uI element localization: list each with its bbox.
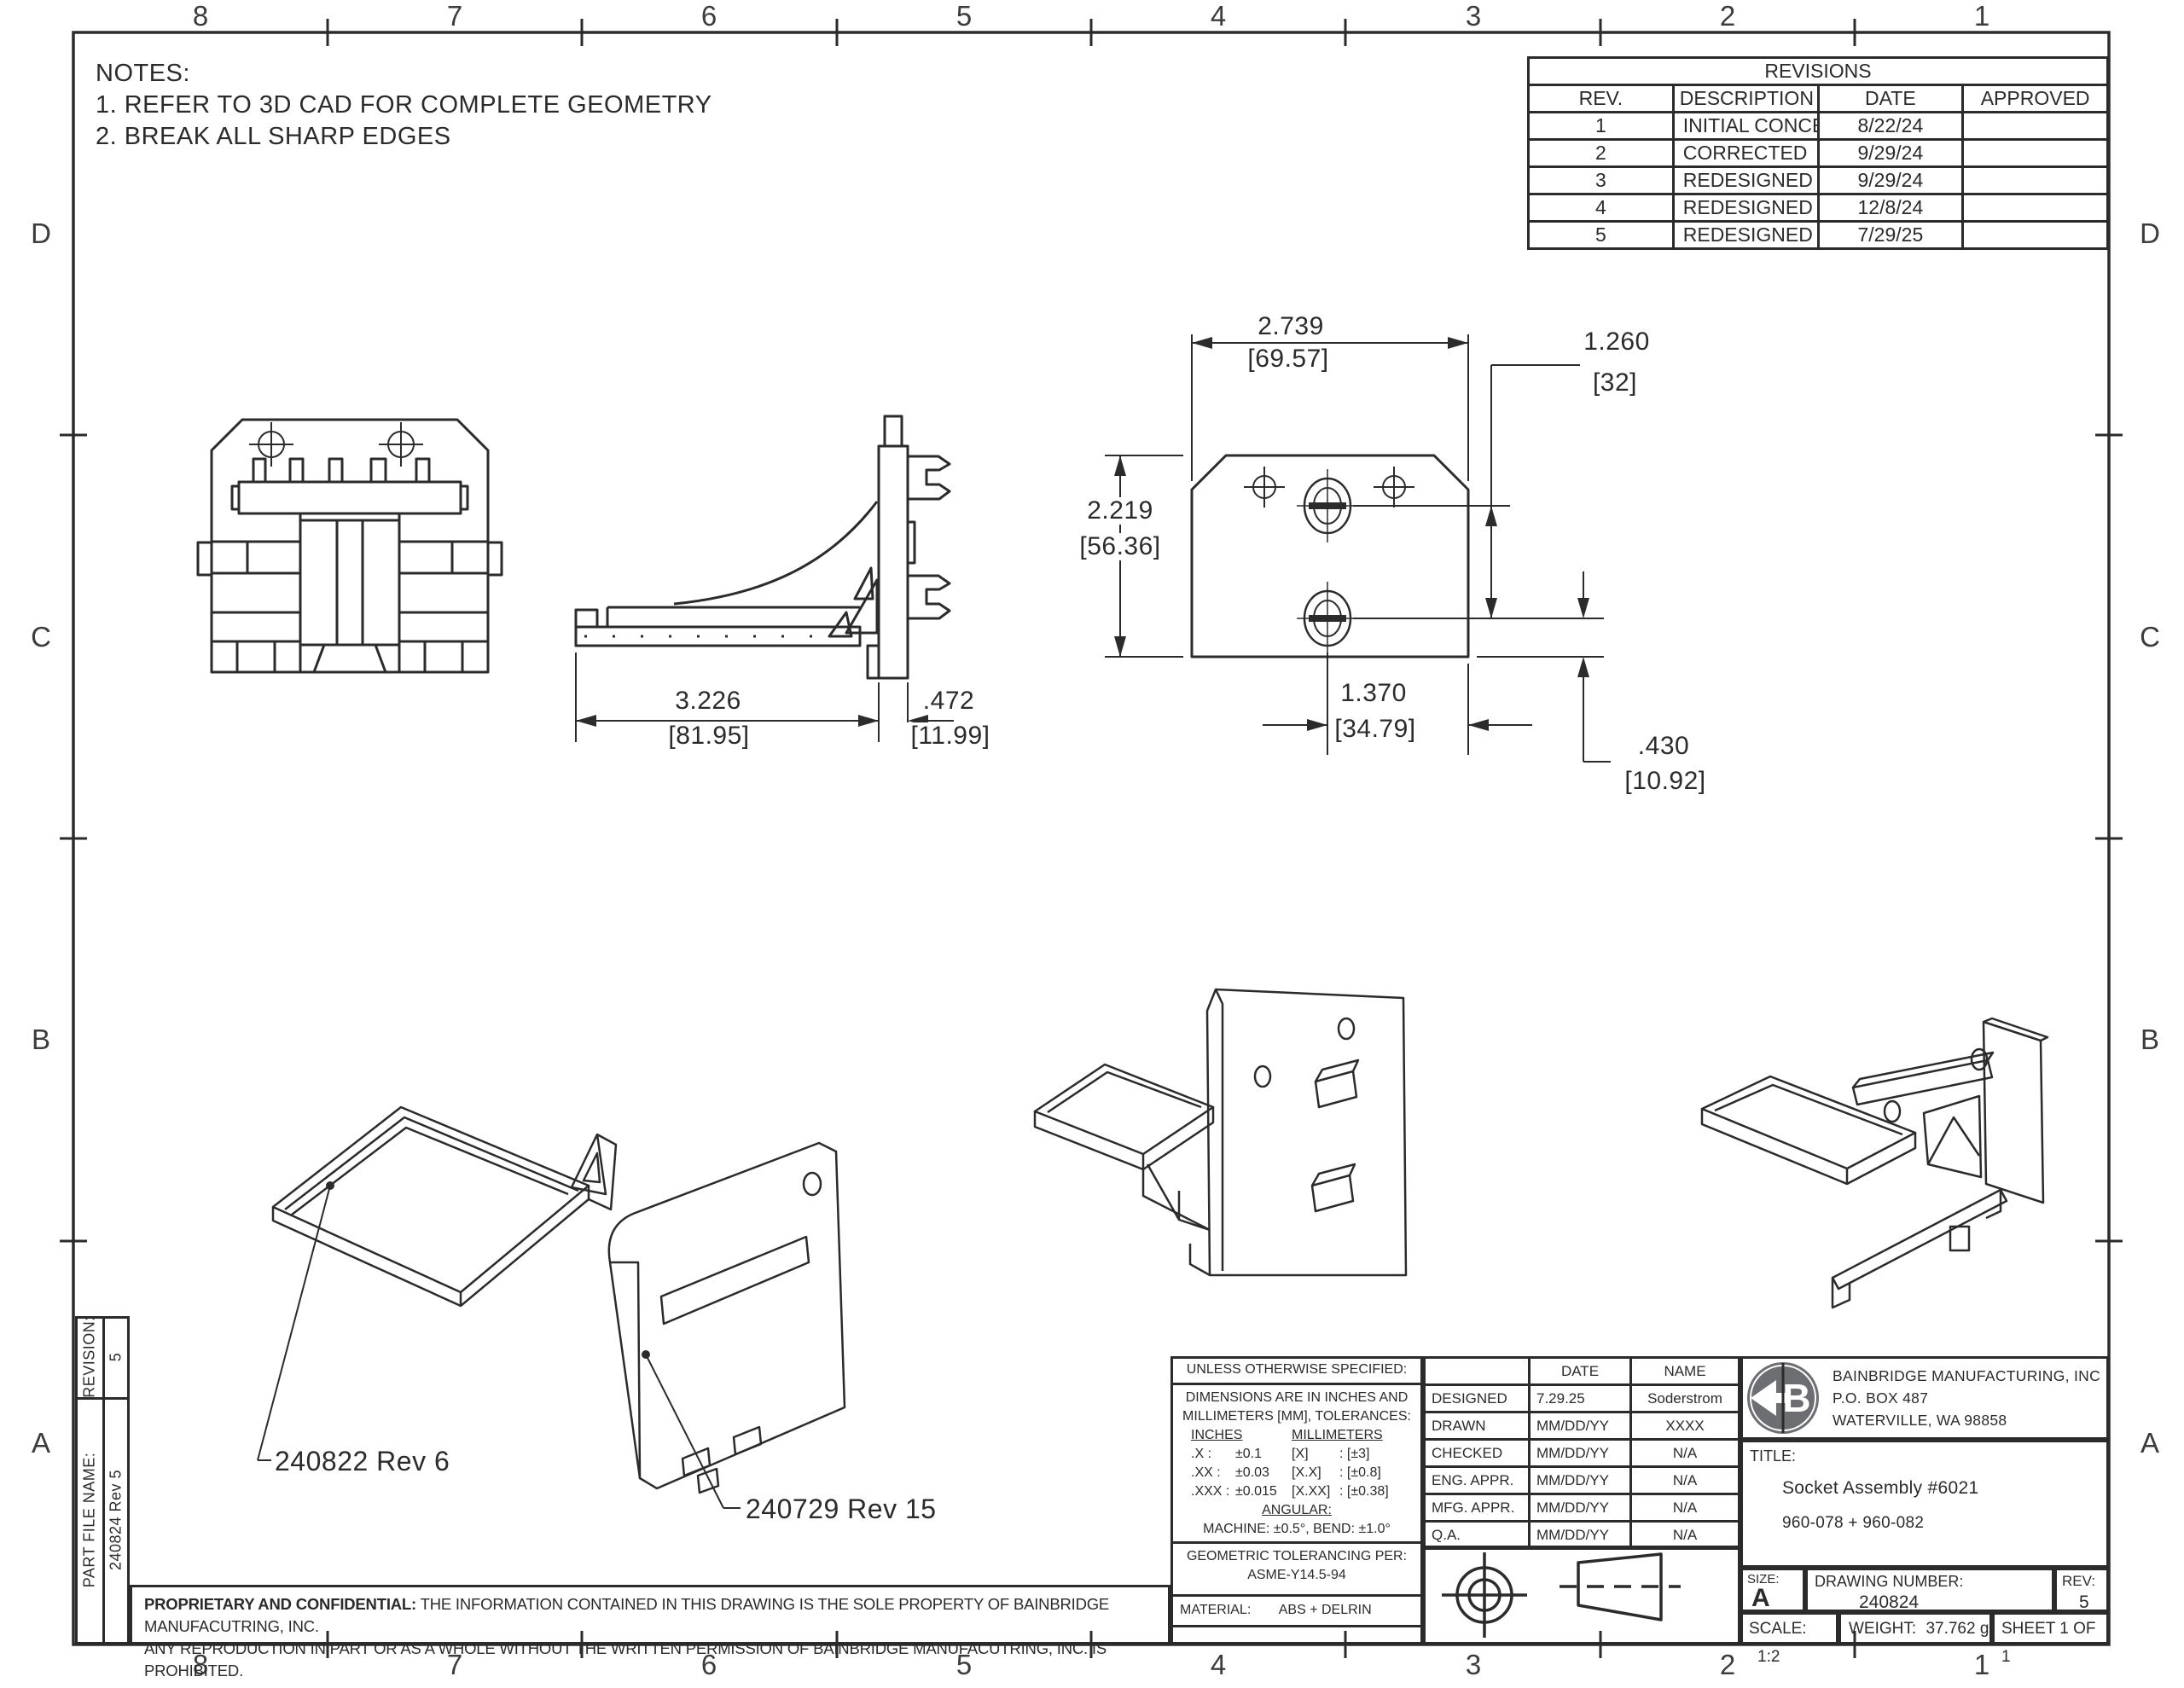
zone-col-top-1: 1 [1974, 0, 1989, 32]
weight-cell: WEIGHT: 37.762 g [1838, 1612, 1992, 1644]
zone-col-top-2: 2 [1720, 0, 1735, 32]
rev-date: 7/29/25 [1818, 222, 1963, 249]
revisions-header-date: DATE [1818, 85, 1963, 113]
dim-clip-to-edge-mm: [34.79] [1330, 716, 1420, 743]
rev-date: 9/29/24 [1818, 167, 1963, 194]
geometric-tolerancing: GEOMETRIC TOLERANCING PER: ASME-Y14.5-94 [1173, 1544, 1420, 1597]
rev-desc: INITIAL CONCEPT [1673, 113, 1818, 140]
proprietary-line1: PROPRIETARY AND CONFIDENTIAL: THE INFORM… [144, 1593, 1168, 1638]
rev-approved [1963, 222, 2108, 249]
company-logo: B [1744, 1360, 1822, 1438]
title-line2: 960-078 + 960-082 [1782, 1514, 1924, 1533]
weight-label: WEIGHT: [1849, 1620, 1916, 1638]
weight-value: 37.762 g [1920, 1620, 1989, 1638]
clip-connector [1297, 469, 1358, 655]
dim-lines [576, 653, 954, 742]
zone-col-bottom-3: 3 [1466, 1649, 1481, 1681]
rev-date: 9/29/24 [1818, 140, 1963, 167]
scale-label: SCALE: [1749, 1620, 1807, 1638]
rev-desc: REDESIGNED [1673, 194, 1818, 222]
appr-name-header: NAME [1631, 1358, 1740, 1385]
appr-blank [1425, 1358, 1530, 1385]
appr-row: DESIGNED7.29.25Soderstrom [1425, 1385, 1740, 1412]
zone-row-left-b: B [32, 1024, 50, 1056]
rev-num: 3 [1529, 167, 1674, 194]
rev-cell: REV: 5 [2054, 1568, 2109, 1612]
appr-date-header: DATE [1530, 1358, 1631, 1385]
part-label-shelf: 240822 Rev 6 [275, 1446, 450, 1477]
appr-row: Q.A.MM/DD/YYN/A [1425, 1522, 1740, 1549]
svg-text:B: B [1782, 1376, 1810, 1420]
rev-value: 5 [2079, 1592, 2089, 1613]
front-view [196, 392, 512, 682]
revision-row: 4REDESIGNED12/8/24 [1529, 194, 2108, 222]
tol-row: .X :±0.1[X]: [±3] [1173, 1445, 1420, 1464]
iso-shelf-view [230, 1083, 623, 1484]
rev-num: 2 [1529, 140, 1674, 167]
dim-plate-width-mm: [69.57] [1247, 346, 1328, 372]
company-address1: P.O. BOX 487 [1833, 1389, 2106, 1407]
tolerance-block: UNLESS OTHERWISE SPECIFIED: DIMENSIONS A… [1170, 1356, 1423, 1644]
rev-desc: CORRECTED [1673, 140, 1818, 167]
appr-row: ENG. APPR.MM/DD/YYN/A [1425, 1467, 1740, 1494]
zone-col-top-6: 6 [701, 0, 717, 32]
revisions-header-approved: APPROVED [1963, 85, 2108, 113]
rev-desc: REDESIGNED [1673, 167, 1818, 194]
drawing-number-cell: DRAWING NUMBER: 240824 [1805, 1568, 2054, 1612]
geo-line2: ASME-Y14.5-94 [1173, 1566, 1420, 1585]
notes-block: NOTES: 1. REFER TO 3D CAD FOR COMPLETE G… [96, 58, 712, 153]
rev-approved [1963, 167, 2108, 194]
iso-plate-view [580, 1126, 870, 1527]
sidebar-revision-label: REVISION: [81, 1316, 99, 1398]
dim-bottom-offset-in: .430 [1638, 734, 1689, 759]
zone-row-left-a: A [32, 1427, 50, 1459]
leader-line [258, 1186, 330, 1460]
part-label-plate: 240729 Rev 15 [746, 1494, 937, 1525]
leader-line [646, 1354, 741, 1508]
tol-angular-value: MACHINE: ±0.5°, BEND: ±1.0° [1173, 1520, 1420, 1539]
rev-approved [1963, 140, 2108, 167]
zone-col-bottom-2: 2 [1720, 1649, 1735, 1681]
tol-angular-header: ANGULAR: [1173, 1501, 1420, 1520]
tol-mm-header: MILLIMETERS [1292, 1426, 1403, 1445]
tolerance-header: UNLESS OTHERWISE SPECIFIED: [1173, 1359, 1420, 1385]
revision-row: 1INITIAL CONCEPT8/22/24 [1529, 113, 2108, 140]
rev-label: REV: [2062, 1573, 2095, 1590]
appr-row: MFG. APPR.MM/DD/YYN/A [1425, 1494, 1740, 1522]
zone-col-top-5: 5 [956, 0, 972, 32]
tol-row: .XXX :±0.015[X.XX]: [±0.38] [1173, 1482, 1420, 1501]
company-info: BAINBRIDGE MANUFACTURING, INC P.O. BOX 4… [1833, 1356, 2106, 1440]
title-cell: TITLE: Socket Assembly #6021 960-078 + 9… [1740, 1440, 2109, 1568]
drawing-number-value: 240824 [1859, 1592, 1919, 1613]
rev-desc: REDESIGNED [1673, 222, 1818, 249]
approvals-table: DATE NAME DESIGNED7.29.25Soderstrom DRAW… [1423, 1356, 1740, 1550]
rev-approved [1963, 194, 2108, 222]
revisions-table: REVISIONS REV. DESCRIPTION DATE APPROVED… [1527, 56, 2109, 250]
third-angle-projection-icon [1423, 1546, 1740, 1644]
dim-plate-thickness-in: .472 [919, 687, 979, 715]
sidebar-part-file-value: 240824 Rev 5 [107, 1470, 125, 1570]
geo-line1: GEOMETRIC TOLERANCING PER: [1173, 1547, 1420, 1566]
appr-row: DRAWNMM/DD/YYXXXX [1425, 1412, 1740, 1440]
appr-row: CHECKEDMM/DD/YYN/A [1425, 1440, 1740, 1467]
zone-col-top-4: 4 [1211, 0, 1226, 32]
iso-assembly-center-view [1015, 972, 1450, 1331]
sheet-cell: SHEET 1 OF 1 [1992, 1612, 2109, 1644]
tol-line1: DIMENSIONS ARE IN INCHES AND [1173, 1389, 1420, 1407]
dim-plate-height-in: 2.219 [1083, 497, 1158, 525]
zone-col-top-8: 8 [193, 0, 208, 32]
material-value: ABS + DELRIN [1255, 1603, 1372, 1617]
material-label: MATERIAL: [1180, 1603, 1251, 1617]
rev-approved [1963, 113, 2108, 140]
company-name: BAINBRIDGE MANUFACTURING, INC [1833, 1367, 2106, 1385]
dim-plate-width-in: 2.739 [1258, 314, 1324, 339]
tolerance-values: DIMENSIONS ARE IN INCHES AND MILLIMETERS… [1173, 1385, 1420, 1544]
dim-bottom-offset-mm: [10.92] [1624, 769, 1705, 794]
title-line1: Socket Assembly #6021 [1782, 1478, 1978, 1499]
notes-title: NOTES: [96, 58, 712, 90]
zone-col-top-7: 7 [447, 0, 462, 32]
rev-num: 4 [1529, 194, 1674, 222]
note-item-2: 2. BREAK ALL SHARP EDGES [96, 121, 712, 153]
revision-row: 3REDESIGNED9/29/24 [1529, 167, 2108, 194]
dim-clip-spacing-mm: [32] [1593, 370, 1637, 396]
dim-plate-height-mm: [56.36] [1075, 533, 1165, 560]
sidebar-revision-value: 5 [107, 1353, 125, 1362]
dim-clip-to-edge-in: 1.370 [1336, 680, 1411, 707]
drawing-number-label: DRAWING NUMBER: [1815, 1573, 1963, 1591]
zone-row-left-d: D [31, 218, 51, 250]
scale-cell: SCALE: 1:2 [1740, 1612, 1838, 1644]
zone-row-right-b: B [2140, 1024, 2159, 1056]
dim-bracket-length-mm: [81.95] [668, 723, 749, 749]
company-address2: WATERVILLE, WA 98858 [1833, 1412, 2106, 1430]
iso-assembly-right-view [1698, 1006, 2107, 1339]
rev-date: 8/22/24 [1818, 113, 1963, 140]
revisions-header-description: DESCRIPTION [1673, 85, 1818, 113]
sidebar-part-file-label: PART FILE NAME: [81, 1453, 99, 1588]
zone-row-left-c: C [31, 621, 51, 653]
rev-num: 1 [1529, 113, 1674, 140]
size-cell: SIZE: A [1740, 1568, 1805, 1612]
zone-col-bottom-4: 4 [1211, 1649, 1226, 1681]
zone-row-right-c: C [2140, 621, 2160, 653]
title-label: TITLE: [1750, 1447, 1796, 1465]
scale-value: 1:2 [1749, 1648, 1780, 1666]
revisions-title: REVISIONS [1529, 58, 2108, 85]
material-row: MATERIAL: ABS + DELRIN [1173, 1597, 1420, 1627]
note-item-1: 1. REFER TO 3D CAD FOR COMPLETE GEOMETRY [96, 90, 712, 121]
zone-col-bottom-1: 1 [1974, 1649, 1989, 1681]
tol-row: .XX :±0.03[X.X]: [±0.8] [1173, 1464, 1420, 1482]
proprietary-bold: PROPRIETARY AND CONFIDENTIAL: [144, 1595, 416, 1613]
target-crosshair-icon [1244, 467, 1414, 508]
tol-line2: MILLIMETERS [MM], TOLERANCES: [1173, 1407, 1420, 1426]
dim-clip-spacing-in: 1.260 [1583, 329, 1650, 355]
revisions-header-rev: REV. [1529, 85, 1674, 113]
rev-num: 5 [1529, 222, 1674, 249]
drawing-sheet: 8 7 6 5 4 3 2 1 8 7 6 5 4 3 2 1 D C B A … [0, 0, 2184, 1688]
zone-col-top-3: 3 [1466, 0, 1481, 32]
revision-row: 2CORRECTED9/29/24 [1529, 140, 2108, 167]
rev-date: 12/8/24 [1818, 194, 1963, 222]
zone-row-right-d: D [2140, 218, 2160, 250]
tol-inches-header: INCHES [1191, 1426, 1292, 1445]
proprietary-line2: ANY REPRODUCTION IN PART OR AS A WHOLE W… [144, 1638, 1168, 1682]
proprietary-notice: PROPRIETARY AND CONFIDENTIAL: THE INFORM… [130, 1585, 1170, 1644]
size-value: A [1751, 1584, 1770, 1613]
revision-row: 5REDESIGNED7/29/25 [1529, 222, 2108, 249]
dim-bracket-length-in: 3.226 [675, 688, 741, 714]
dim-plate-thickness-mm: [11.99] [906, 722, 994, 750]
zone-row-right-a: A [2140, 1427, 2159, 1459]
